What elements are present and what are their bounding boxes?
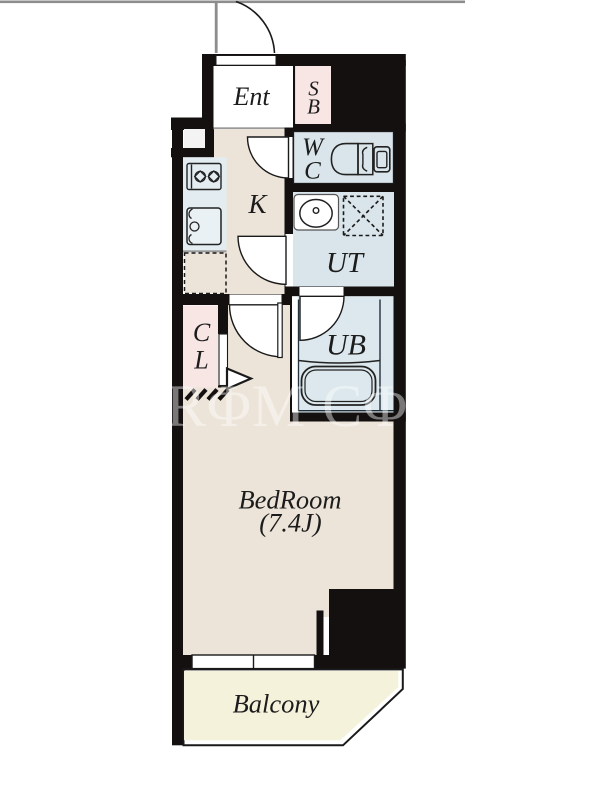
svg-text:Balcony: Balcony: [233, 689, 320, 719]
svg-text:RΦM CΦR: RΦM CΦR: [166, 373, 449, 439]
svg-text:C: C: [304, 158, 321, 185]
svg-text:(7.4J): (7.4J): [259, 508, 322, 538]
svg-text:Ent: Ent: [232, 82, 270, 111]
svg-text:L: L: [193, 346, 208, 375]
svg-text:C: C: [193, 318, 211, 347]
svg-text:B: B: [307, 95, 320, 119]
svg-text:K: K: [247, 189, 268, 219]
svg-text:UT: UT: [326, 247, 365, 279]
svg-text:UB: UB: [326, 329, 366, 362]
